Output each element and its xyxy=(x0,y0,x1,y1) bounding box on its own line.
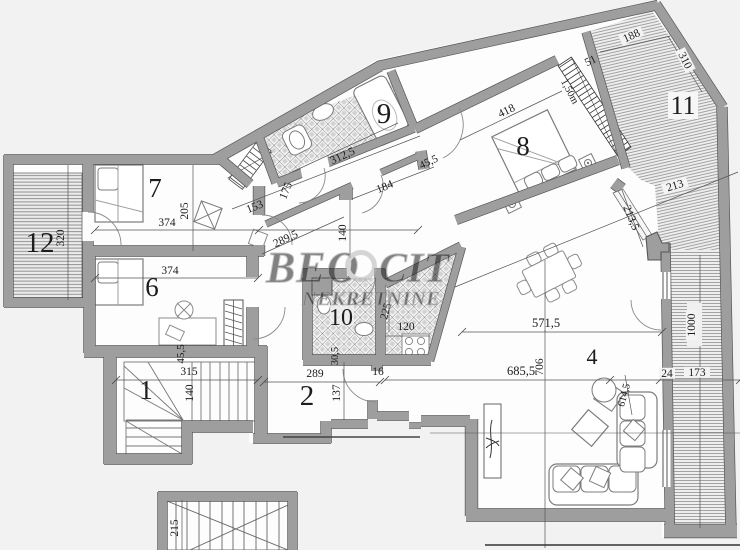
svg-text:1: 1 xyxy=(139,375,153,405)
svg-text:374: 374 xyxy=(158,217,176,229)
svg-text:12: 12 xyxy=(26,227,55,259)
svg-text:30,5: 30,5 xyxy=(330,347,341,365)
svg-text:685,5: 685,5 xyxy=(507,364,535,378)
svg-text:4: 4 xyxy=(587,344,598,369)
svg-text:120: 120 xyxy=(397,321,415,333)
svg-text:571,5: 571,5 xyxy=(532,316,560,330)
svg-text:7: 7 xyxy=(148,173,162,203)
svg-text:CIT: CIT xyxy=(379,246,451,292)
svg-text:706: 706 xyxy=(534,358,546,376)
svg-text:NEKRETNINE: NEKRETNINE xyxy=(301,288,440,310)
svg-text:320: 320 xyxy=(55,229,67,247)
svg-text:140: 140 xyxy=(337,224,349,242)
svg-text:137: 137 xyxy=(331,384,343,402)
svg-text:374: 374 xyxy=(161,265,179,277)
svg-text:173: 173 xyxy=(688,367,706,379)
svg-text:205: 205 xyxy=(179,202,191,220)
svg-text:289: 289 xyxy=(306,368,324,380)
svg-text:11: 11 xyxy=(670,91,695,120)
svg-text:16: 16 xyxy=(372,366,384,378)
svg-text:315: 315 xyxy=(180,366,198,378)
svg-text:2: 2 xyxy=(300,380,315,412)
svg-text:8: 8 xyxy=(516,131,530,161)
svg-text:140: 140 xyxy=(184,384,196,402)
svg-text:9: 9 xyxy=(377,98,392,130)
svg-text:45,5: 45,5 xyxy=(175,344,187,364)
svg-text:6: 6 xyxy=(145,272,159,302)
svg-text:215: 215 xyxy=(169,519,181,537)
svg-text:24: 24 xyxy=(661,368,673,380)
svg-text:1000: 1000 xyxy=(686,313,698,336)
